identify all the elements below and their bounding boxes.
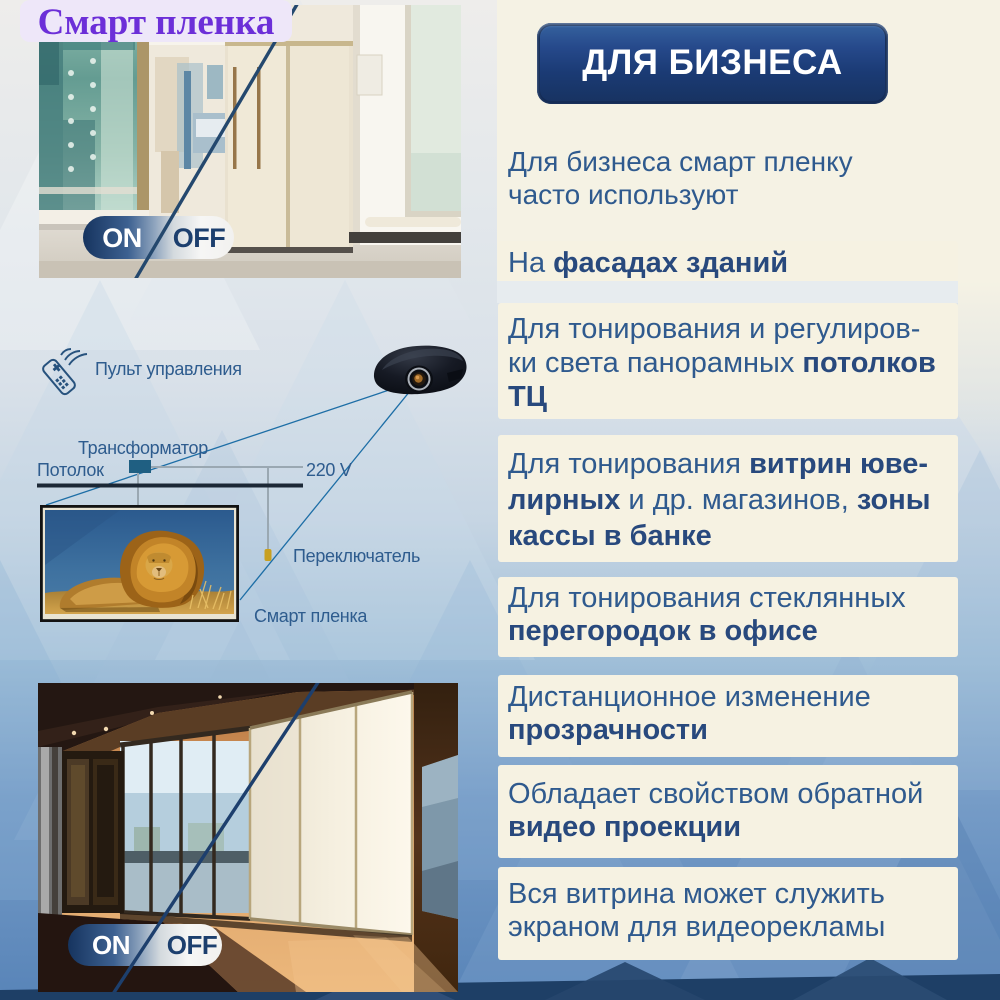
svg-text:ON: ON <box>92 930 130 960</box>
svg-text:OFF: OFF <box>167 930 218 960</box>
